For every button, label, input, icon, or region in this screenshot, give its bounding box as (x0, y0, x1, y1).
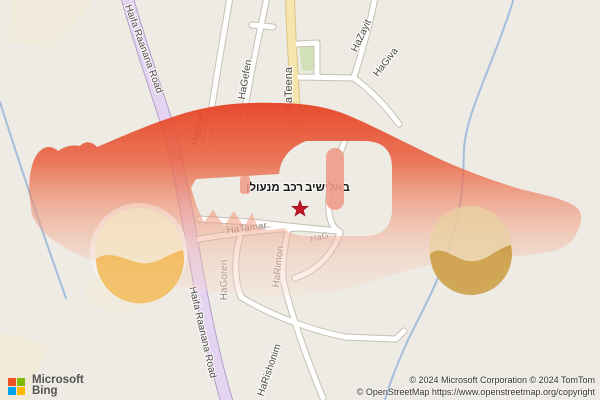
map-svg[interactable]: Haifa Raanana Road Haifa Raanana Road Ha… (0, 0, 600, 400)
logo-bing-text: Bing (32, 386, 84, 397)
label-harishonim: HaRishonim (256, 343, 284, 398)
poi-word-1: מנעולן (246, 181, 280, 194)
map-canvas[interactable]: Haifa Raanana Road Haifa Raanana Road Ha… (0, 0, 600, 400)
ms-square-yellow (17, 387, 25, 395)
poi-star-icon[interactable] (292, 201, 308, 216)
osm-copyright-link[interactable]: © OpenStreetMap https://www.openstreetma… (357, 387, 595, 399)
label-hagiva: HaGiva (371, 46, 400, 79)
key-notch (240, 176, 250, 194)
label-haifa-raanana-top: Haifa Raanana Road (122, 3, 164, 95)
attribution: © 2024 Microsoft Corporation © 2024 TomT… (357, 375, 595, 398)
bing-logo[interactable]: Microsoft Bing (8, 375, 84, 397)
road-hagiva (354, 78, 399, 124)
key-slot (326, 148, 344, 210)
copyright-line: © 2024 Microsoft Corporation © 2024 TomT… (357, 375, 595, 387)
label-hazayit: HaZayit (349, 18, 374, 54)
car-wheel-right (429, 206, 512, 295)
ms-square-blue (8, 387, 16, 395)
poi-word-2: רכב (283, 182, 303, 194)
ms-square-red (8, 378, 16, 386)
microsoft-logo-icon (8, 378, 25, 395)
ms-square-green (17, 378, 25, 386)
